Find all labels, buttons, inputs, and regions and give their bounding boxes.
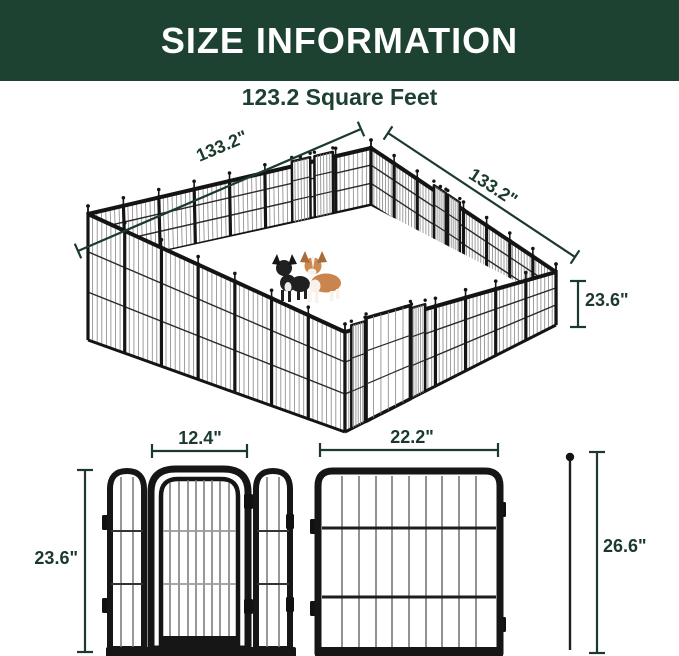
- hinge: [244, 599, 253, 614]
- dim-label-panel-height: 23.6": [20, 548, 78, 569]
- dim-line-panel-height: [77, 470, 93, 652]
- regular-panel-figure: [310, 471, 506, 656]
- size-information-infographic: SIZE INFORMATION 123.2 Square Feet: [0, 0, 679, 656]
- ground-stake-figure: [566, 453, 574, 650]
- pen-illustration: [0, 0, 679, 656]
- dim-label-door-width: 12.4": [160, 428, 240, 449]
- dim-label-pen-height: 23.6": [585, 290, 629, 311]
- door-panel-figure: [102, 469, 296, 656]
- dim-line-pen-height: [570, 281, 586, 327]
- hinge: [244, 494, 253, 509]
- dim-label-stake-height: 26.6": [603, 536, 647, 557]
- door-gate: [161, 479, 238, 645]
- dim-label-panel-width: 22.2": [372, 427, 452, 448]
